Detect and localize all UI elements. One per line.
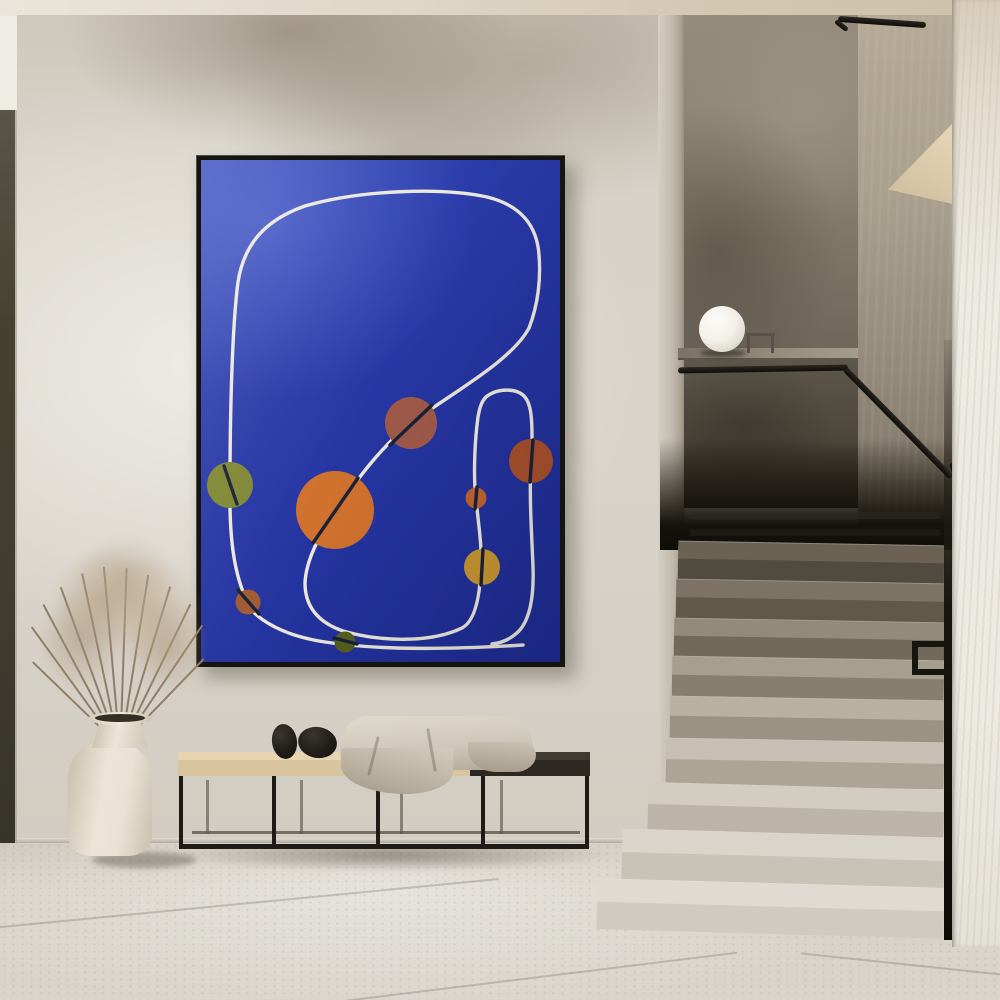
- bench-back-leg: [206, 780, 209, 834]
- poster-canvas: [201, 160, 560, 662]
- dried-grass-plume: [128, 600, 208, 695]
- stair-step: [666, 738, 945, 790]
- poster-glass-sheen: [201, 160, 560, 662]
- bench-leg: [481, 776, 485, 848]
- stairwell-back-wall: [684, 15, 858, 355]
- bench-back-rail: [192, 831, 580, 834]
- stair-step: [670, 696, 945, 744]
- vase-mouth: [95, 714, 145, 722]
- ceramic-vase: [68, 740, 152, 856]
- upper-tread-shadow: [690, 529, 940, 536]
- sphere-lamp: [699, 306, 745, 352]
- stair-step: [674, 618, 945, 662]
- poster-frame: [196, 155, 565, 667]
- bench-leg: [272, 776, 276, 848]
- stair-step: [672, 656, 945, 702]
- console-table-leg: [771, 336, 774, 353]
- handrail-bracket: [912, 641, 952, 675]
- bench-back-leg: [300, 780, 303, 834]
- bench-back-leg: [500, 780, 503, 834]
- stair-step: [596, 878, 944, 939]
- bench-leg: [179, 776, 183, 848]
- upper-tread-shadow: [690, 512, 940, 519]
- foreground-column: [952, 0, 1000, 947]
- bench-front-rail: [179, 844, 589, 849]
- stair-step: [676, 579, 945, 624]
- bench-leg: [585, 776, 589, 848]
- interior-scene: [0, 0, 1000, 1000]
- console-table-leg: [747, 336, 750, 353]
- stair-step: [678, 541, 945, 585]
